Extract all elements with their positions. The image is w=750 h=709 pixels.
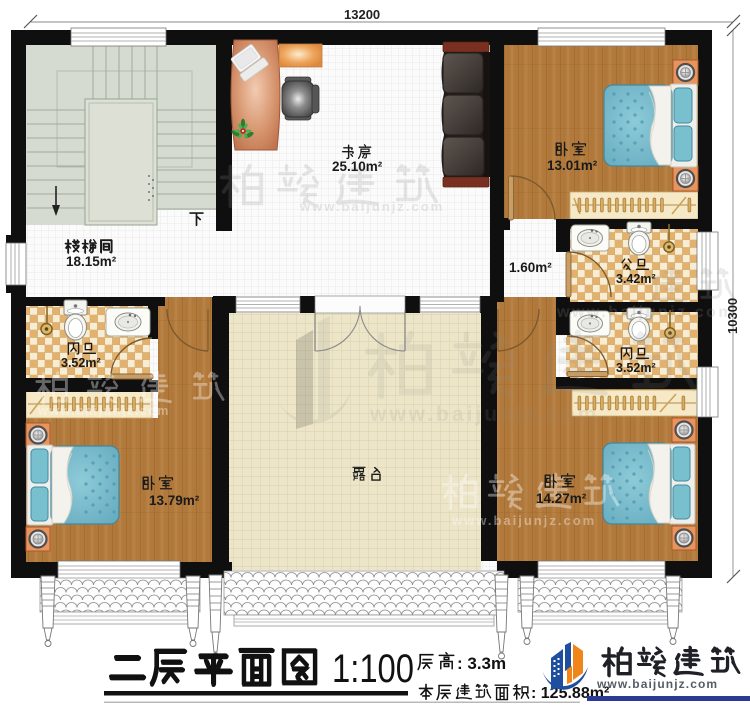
svg-text:www.baijunjz.com: www.baijunjz.com	[369, 403, 599, 426]
svg-text:1:100: 1:100	[332, 647, 414, 691]
svg-text:13.01m²: 13.01m²	[547, 158, 598, 173]
svg-text:3.52m²: 3.52m²	[616, 361, 656, 375]
svg-text:3.42m²: 3.42m²	[616, 272, 656, 286]
svg-text:18.15m²: 18.15m²	[66, 254, 117, 269]
svg-text:www.baijunjz.com: www.baijunjz.com	[299, 199, 444, 214]
svg-text:www.baijunjz.com: www.baijunjz.com	[451, 513, 596, 528]
svg-text:14.27m²: 14.27m²	[536, 491, 587, 506]
svg-text:: 3.3m: : 3.3m	[457, 654, 506, 673]
svg-text:10300: 10300	[725, 298, 740, 334]
svg-text:www.baijunjz.com: www.baijunjz.com	[37, 404, 170, 418]
svg-text:www.baijunjz.com: www.baijunjz.com	[596, 677, 718, 691]
svg-text:www.baijunjz.com: www.baijunjz.com	[556, 304, 735, 321]
svg-text:25.10m²: 25.10m²	[332, 159, 383, 174]
svg-text:13.79m²: 13.79m²	[149, 493, 200, 508]
svg-text:1.60m²: 1.60m²	[509, 260, 552, 275]
svg-text:3.52m²: 3.52m²	[61, 356, 101, 370]
svg-text:13200: 13200	[344, 7, 380, 22]
